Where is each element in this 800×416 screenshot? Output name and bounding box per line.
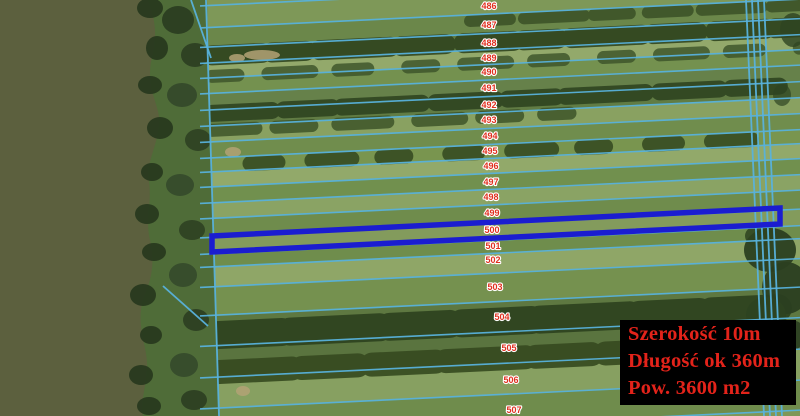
parcel-number: 498 [483,192,498,202]
parcel-number: 503 [487,282,502,292]
parcel-number: 499 [484,208,499,218]
parcel-number: 493 [481,115,496,125]
parcel-number: 486 [481,1,496,11]
parcel-number: 490 [481,67,496,77]
info-line-length: Długość ok 360m [628,348,796,375]
parcel-number: 502 [485,255,500,265]
parcel-number: 494 [482,131,497,141]
info-line-width: Szerokość 10m [628,321,796,348]
parcel-number: 489 [481,53,496,63]
parcel-number: 491 [481,83,496,93]
parcel-number: 488 [481,38,496,48]
measurement-info-box: Szerokość 10m Długość ok 360m Pow. 3600 … [620,320,796,405]
info-line-area: Pow. 3600 m2 [628,375,796,402]
parcel-number: 497 [483,177,498,187]
parcel-number: 501 [485,241,500,251]
parcel-number: 496 [483,161,498,171]
parcel-number: 492 [481,100,496,110]
parcel-number: 500 [484,225,499,235]
water-area [0,0,159,416]
parcel-number: 505 [501,343,516,353]
parcel-number: 504 [494,312,509,322]
parcel-number: 495 [482,146,497,156]
parcel-number: 506 [503,375,518,385]
parcel-number: 487 [481,20,496,30]
aerial-map-view: 4864874884894904914924934944954964974984… [0,0,800,416]
parcel-number: 507 [506,405,521,415]
